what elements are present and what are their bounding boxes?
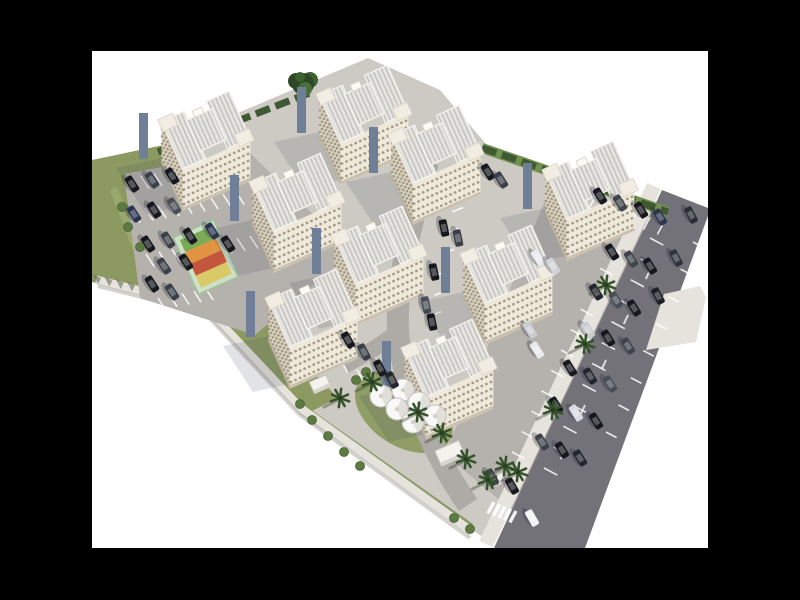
bush-icon [118, 203, 127, 212]
bush-icon [308, 416, 317, 425]
bush-icon [352, 376, 361, 385]
bush-icon [296, 400, 305, 409]
bush-icon [450, 514, 459, 523]
bush-icon [124, 223, 133, 232]
bush-icon [340, 448, 349, 457]
letterboxed-render [0, 0, 800, 600]
bush-icon [324, 432, 333, 441]
bush-icon [466, 525, 475, 534]
bush-icon [136, 243, 145, 252]
aerial-render-svg [0, 0, 800, 600]
bush-icon [356, 462, 365, 471]
